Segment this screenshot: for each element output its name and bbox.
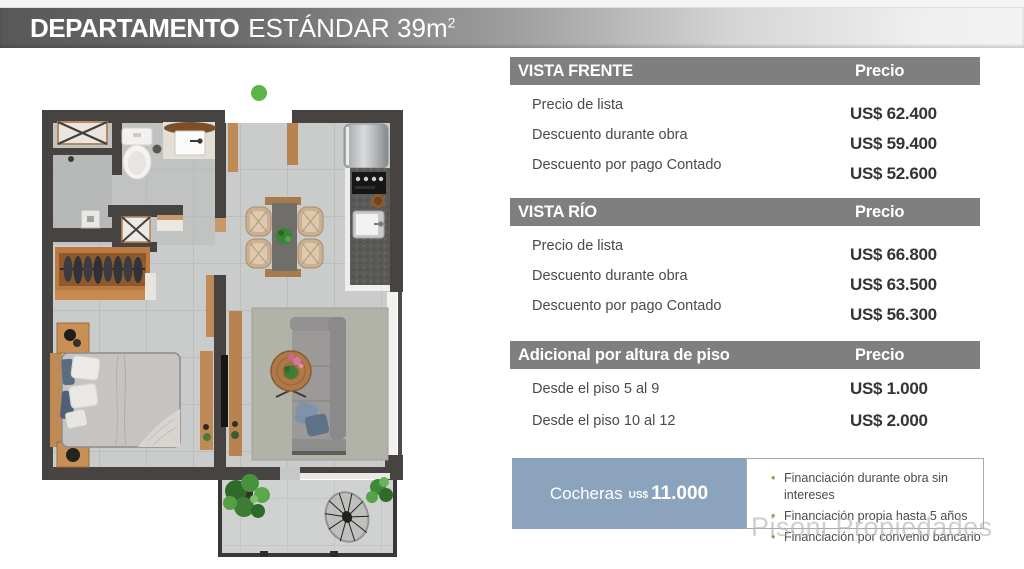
table-header: VISTA RÍO Precio	[510, 198, 980, 226]
page-title-superscript: 2	[448, 14, 456, 30]
row-label: Precio de lista	[532, 231, 850, 261]
row-label: Descuento durante obra	[532, 120, 850, 150]
table-rows: Precio de lista US$ 62.400 Descuento dur…	[510, 85, 980, 180]
row-label: Descuento durante obra	[532, 261, 850, 291]
row-label: Desde el piso 10 al 12	[532, 406, 850, 438]
row-price: US$ 1.000	[850, 374, 928, 406]
row-label: Desde el piso 5 al 9	[532, 374, 850, 406]
price-column-header: Precio	[855, 62, 980, 81]
page: DEPARTAMENTO ESTÁNDAR 39m2	[0, 0, 1024, 569]
parking-amount: 11.000	[651, 483, 708, 505]
row-label: Precio de lista	[532, 90, 850, 120]
table-header-title: Adicional por altura de piso	[518, 346, 855, 365]
living-group	[252, 308, 388, 460]
floorplan-svg	[40, 83, 408, 563]
table-rows: Precio de lista US$ 66.800 Descuento dur…	[510, 226, 980, 321]
available-unit-marker	[251, 85, 267, 101]
page-title-bold: DEPARTAMENTO	[30, 13, 239, 44]
parking-currency: US$	[629, 490, 648, 501]
price-column-header: Precio	[855, 203, 980, 222]
table-row: Precio de lista US$ 66.800	[510, 231, 980, 261]
row-price: US$ 56.300	[850, 300, 937, 330]
page-title-text: ESTÁNDAR 39m	[248, 13, 447, 43]
row-price: US$ 52.600	[850, 159, 937, 189]
price-table-vista-frente: VISTA FRENTE Precio Precio de lista US$ …	[510, 57, 980, 180]
parking-label: Cocheras	[550, 484, 623, 504]
table-rows: Desde el piso 5 al 9 US$ 1.000 Desde el …	[510, 369, 980, 438]
row-price: US$ 2.000	[850, 406, 928, 438]
row-price: US$ 63.500	[850, 270, 937, 300]
price-column-header: Precio	[855, 346, 980, 365]
watermark: Pisoni Propiedades	[751, 512, 993, 543]
row-label: Descuento por pago Contado	[532, 291, 850, 321]
row-price: US$ 62.400	[850, 99, 937, 129]
table-header: VISTA FRENTE Precio	[510, 57, 980, 85]
price-panel: VISTA FRENTE Precio Precio de lista US$ …	[510, 0, 980, 569]
table-header-title: VISTA FRENTE	[518, 62, 855, 81]
page-title-regular: ESTÁNDAR 39m2	[248, 13, 455, 44]
row-label: Descuento por pago Contado	[532, 150, 850, 180]
floorplan	[40, 83, 408, 563]
table-header-title: VISTA RÍO	[518, 203, 855, 222]
closet-group	[55, 247, 156, 300]
row-price: US$ 59.400	[850, 129, 937, 159]
table-row: Desde el piso 10 al 12 US$ 2.000	[510, 406, 980, 438]
financing-item: Financiación durante obra sin intereses	[769, 470, 983, 504]
row-price: US$ 66.800	[850, 240, 937, 270]
price-table-vista-rio: VISTA RÍO Precio Precio de lista US$ 66.…	[510, 198, 980, 321]
table-row: Desde el piso 5 al 9 US$ 1.000	[510, 374, 980, 406]
table-header: Adicional por altura de piso Precio	[510, 341, 980, 369]
kitchen-group	[344, 124, 390, 291]
parking-box: Cocheras US$ 11.000	[512, 458, 746, 529]
price-table-altura-piso: Adicional por altura de piso Precio Desd…	[510, 341, 980, 438]
table-row: Precio de lista US$ 62.400	[510, 90, 980, 120]
